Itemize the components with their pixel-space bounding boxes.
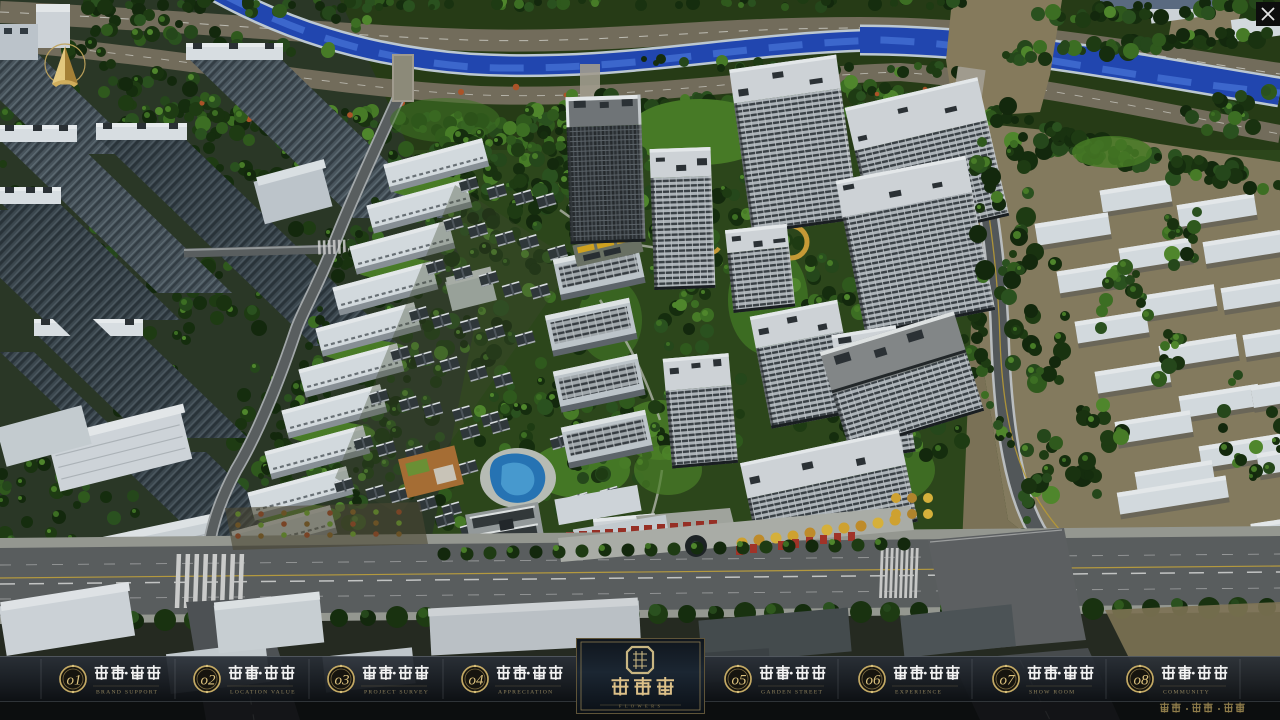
svg-text:COMMUNITY: COMMUNITY <box>1163 690 1210 696</box>
svg-text:F L O W E R S: F L O W E R S <box>619 704 661 709</box>
svg-text:o8: o8 <box>1134 673 1150 689</box>
svg-text:o4: o4 <box>469 673 485 689</box>
svg-text:o1: o1 <box>67 673 82 689</box>
svg-text:o6: o6 <box>866 673 882 689</box>
svg-text:o2: o2 <box>201 673 217 689</box>
svg-text:o7: o7 <box>1000 673 1017 689</box>
svg-text:o5: o5 <box>732 673 748 689</box>
svg-text:PROJECT SURVEY: PROJECT SURVEY <box>364 690 429 696</box>
svg-text:LOCATION VALUE: LOCATION VALUE <box>230 690 296 696</box>
svg-text:APPRECIATION: APPRECIATION <box>498 690 553 696</box>
svg-text:BRAND SUPPORT: BRAND SUPPORT <box>96 690 158 696</box>
svg-text:GARDEN STREET: GARDEN STREET <box>761 690 823 696</box>
svg-text:EXPERIENCE: EXPERIENCE <box>895 690 942 696</box>
svg-text:SHOW ROOM: SHOW ROOM <box>1029 690 1075 696</box>
svg-text:o3: o3 <box>335 673 350 689</box>
